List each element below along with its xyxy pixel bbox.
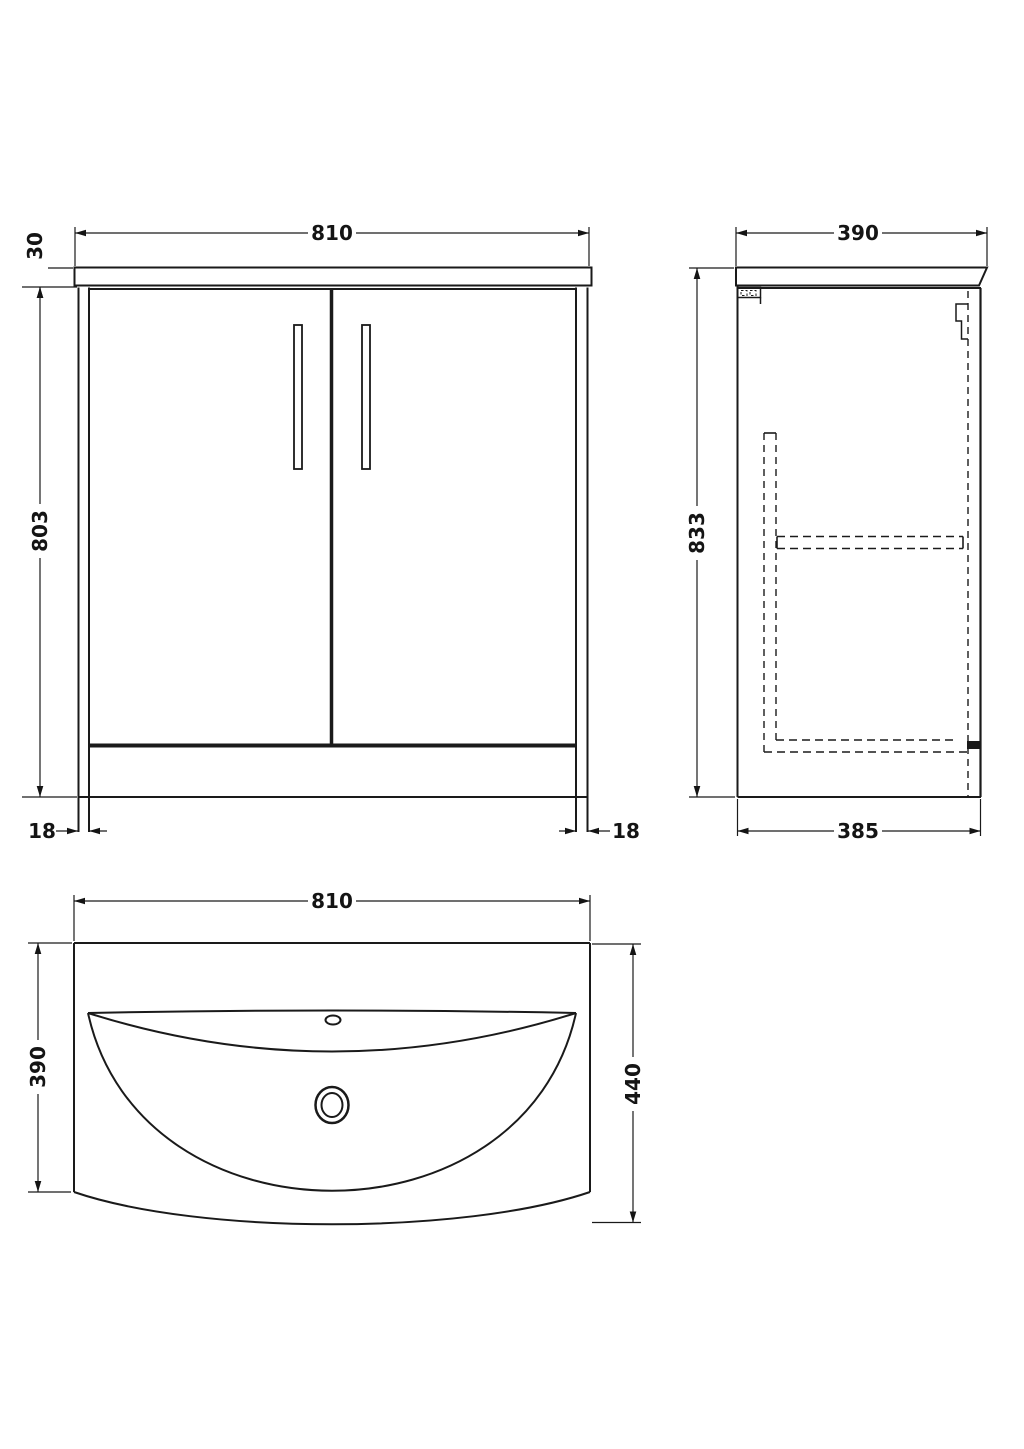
dim-basin-depth-label: 390 <box>26 1046 50 1088</box>
dim-basin-overall-depth-label: 440 <box>621 1063 645 1105</box>
worktop-side <box>736 268 987 286</box>
dim-side-base-depth-label: 385 <box>837 819 879 843</box>
dim-front-left-leg-label: 18 <box>28 819 56 843</box>
dim-front-right-leg-label: 18 <box>612 819 640 843</box>
technical-drawing-page: 810 30 803 18 18 <box>0 0 1024 1449</box>
dim-front-width-label: 810 <box>311 221 353 245</box>
dim-side-depth-label: 390 <box>837 221 879 245</box>
dim-side-height-label: 833 <box>685 512 709 554</box>
vanity-dimension-drawing: 810 30 803 18 18 <box>0 0 1024 1449</box>
dim-basin-width-label: 810 <box>311 889 353 913</box>
dim-front-body-height-label: 803 <box>28 510 52 552</box>
left-door-handle <box>294 325 302 469</box>
dim-front-worktop-height-label: 30 <box>23 232 47 260</box>
right-door-handle <box>362 325 370 469</box>
canvas-background <box>0 0 1024 1449</box>
